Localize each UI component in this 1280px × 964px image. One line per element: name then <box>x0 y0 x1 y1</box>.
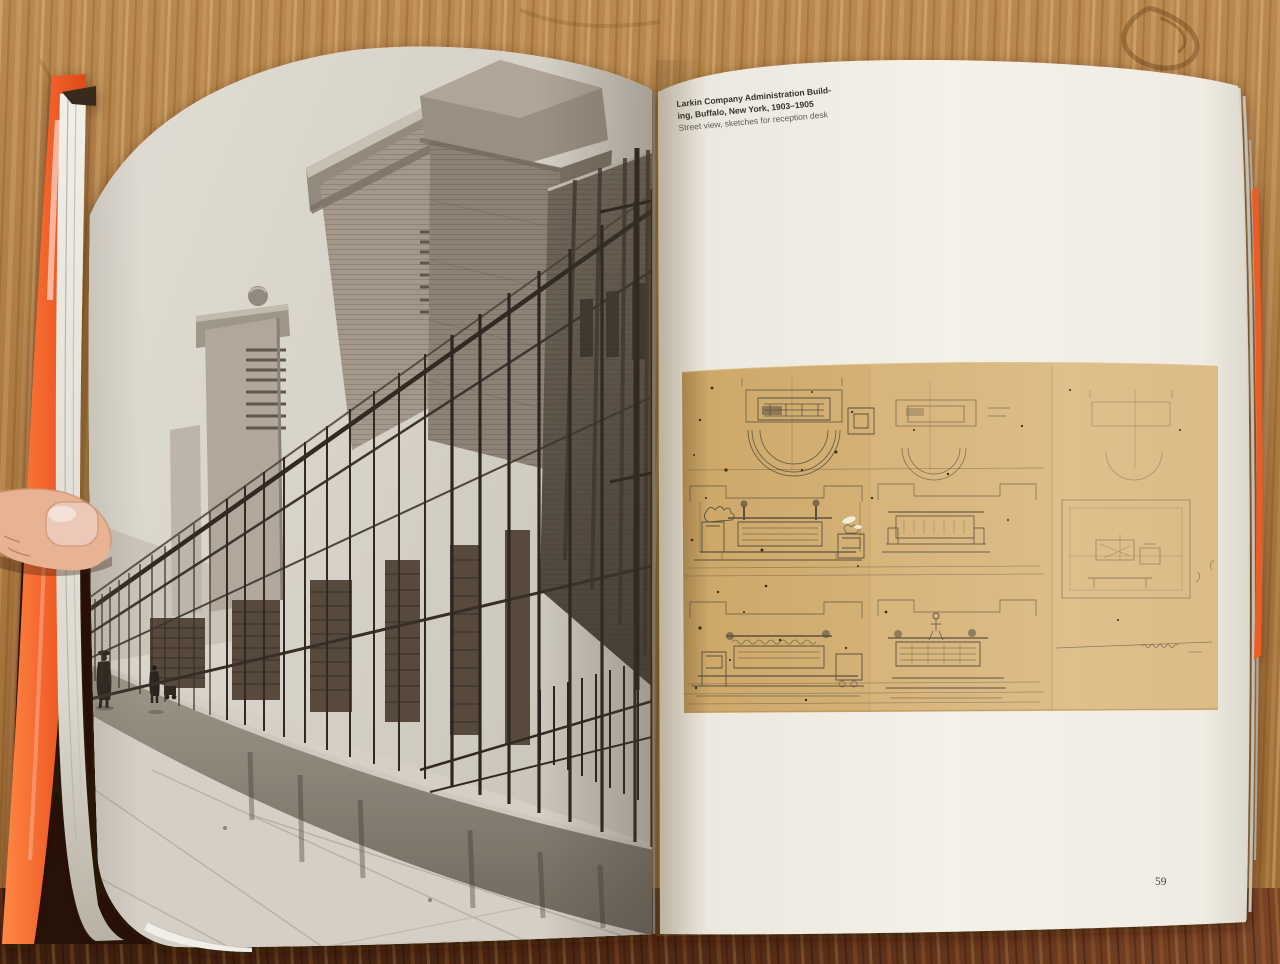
scene: Larkin Company Administration Build- ing… <box>0 0 1280 964</box>
larkin-photograph <box>84 38 656 952</box>
gutter-shadow-right <box>656 60 708 936</box>
whiteout-spot-2 <box>854 525 862 529</box>
spine-gap <box>654 92 655 934</box>
book <box>2 38 1262 952</box>
page-curvature-shade <box>84 38 656 948</box>
left-page <box>84 38 656 952</box>
right-page <box>656 60 1249 936</box>
book-photo <box>0 0 1280 964</box>
page-number: 59 <box>1155 876 1167 888</box>
